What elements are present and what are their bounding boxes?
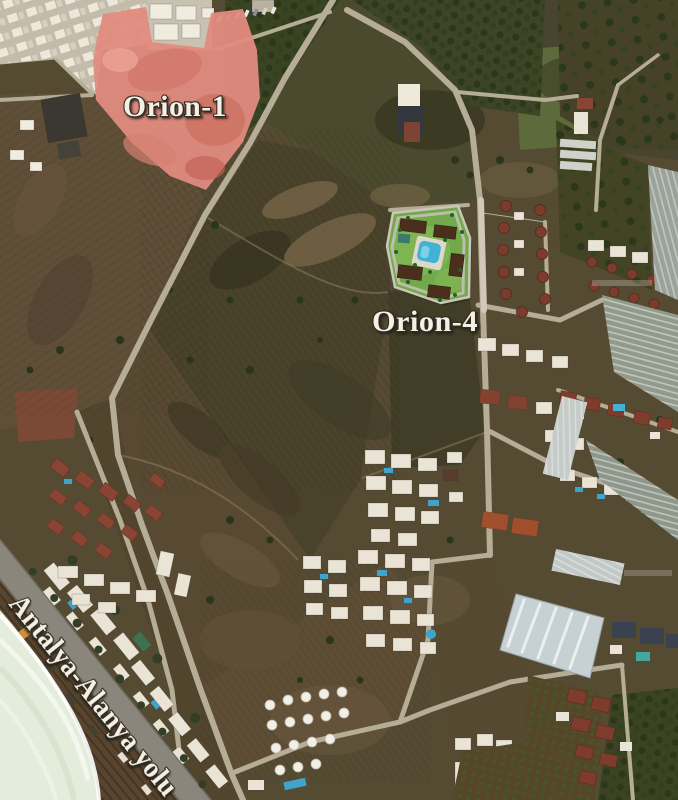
pool [636,652,650,661]
watermark [624,570,672,576]
pool [613,404,625,411]
pool [404,598,412,603]
pool [64,479,72,484]
warehouse-building [40,93,87,143]
pool [377,570,387,576]
round-pool [426,629,436,639]
site-tennis-court [398,233,411,243]
satellite-map: Orion-1 Orion-4 Antalya-Alanya yolu [0,0,678,800]
pool [384,468,393,473]
pool [320,574,328,579]
orion4-label: Orion-4 [372,305,478,338]
pool [428,500,439,506]
watermark [592,280,652,286]
satellite-map-image: Orion-1 Orion-4 Antalya-Alanya yolu [0,0,678,800]
orion1-label: Orion-1 [123,90,227,123]
